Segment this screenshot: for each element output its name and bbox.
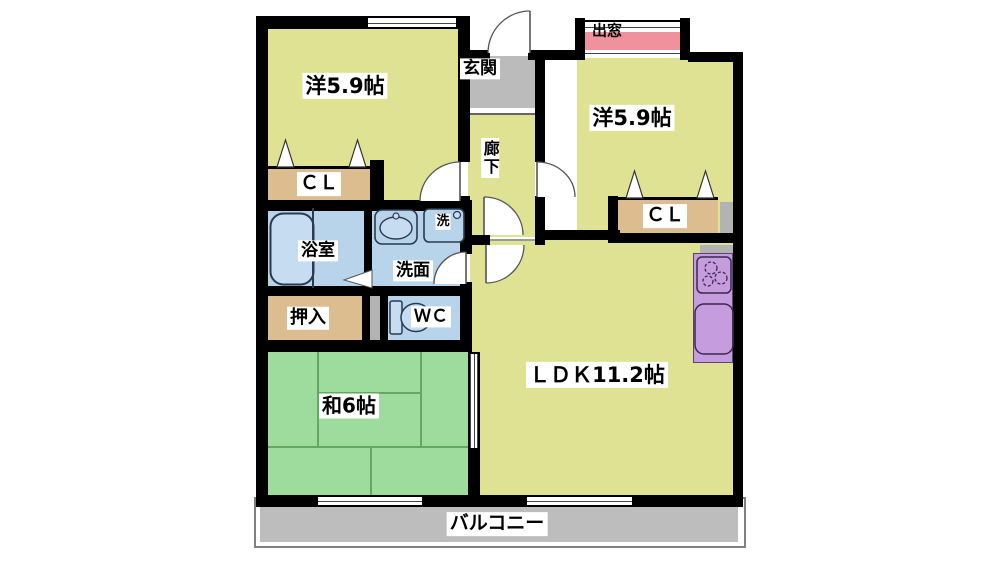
label-washer: 洗 (435, 214, 450, 230)
door-swing-icon (488, 11, 530, 53)
label-futon-closet: 押入 (287, 307, 329, 330)
wall (575, 18, 585, 60)
room-label-toilet: ＷＣ (411, 306, 451, 327)
folding-door-icon (626, 171, 643, 198)
tatami-line (370, 446, 372, 497)
wall (362, 294, 370, 342)
toilet-door-panel (370, 296, 380, 340)
wall (370, 160, 384, 208)
entrance-step (468, 108, 535, 115)
sliding-window-icon (368, 18, 456, 27)
bay-window-inner-glass (585, 50, 680, 55)
room-label-bathroom: 浴室 (298, 240, 338, 261)
label-closet-left: ＣＬ (297, 172, 341, 196)
washbasin-icon (374, 209, 418, 245)
wall (380, 294, 388, 342)
kitchen-sink-icon (694, 303, 734, 355)
balcony-window-icon (318, 497, 422, 505)
wall (460, 282, 472, 352)
room-label-balcony: バルコニー (447, 512, 548, 536)
door-swing-icon (434, 252, 466, 284)
tatami-line (420, 350, 422, 448)
folding-door-icon (697, 171, 714, 198)
door-swing-icon (486, 245, 524, 283)
room-label-japanese: 和6帖 (319, 394, 379, 419)
sliding-door-icon (470, 354, 478, 448)
room-label-western-2: 洋5.9帖 (589, 105, 674, 131)
bathroom-door-icon (344, 270, 372, 288)
room-label-entrance: 玄関 (460, 58, 500, 79)
folding-door-icon (277, 140, 294, 167)
room-label-ldk: ＬＤＫ11.2帖 (526, 362, 668, 388)
wall (733, 52, 743, 507)
door-swing-icon (420, 162, 460, 201)
folding-door-icon (349, 140, 366, 167)
stove-icon (696, 256, 732, 294)
floor-plan: 洋5.9帖 洋5.9帖 玄関 廊下 出窓 ＣＬ ＣＬ 浴室 洗面 洗 押入 ＷＣ… (0, 0, 1000, 562)
wall (535, 52, 545, 162)
label-bay-window: 出窓 (589, 22, 625, 41)
room-label-western-1: 洋5.9帖 (302, 73, 387, 99)
wall (256, 16, 268, 502)
doorway-threshold (490, 239, 535, 241)
wall (535, 196, 545, 245)
wall (256, 340, 472, 352)
label-closet-right: ＣＬ (643, 204, 687, 228)
door-swing-icon (537, 162, 575, 197)
wall (608, 233, 743, 243)
pipe-space-right (720, 202, 733, 234)
door-swing-icon (484, 197, 523, 235)
room-label-hallway: 廊下 (481, 138, 499, 178)
balcony-window-icon (527, 497, 632, 505)
room-label-washroom: 洗面 (393, 260, 433, 281)
